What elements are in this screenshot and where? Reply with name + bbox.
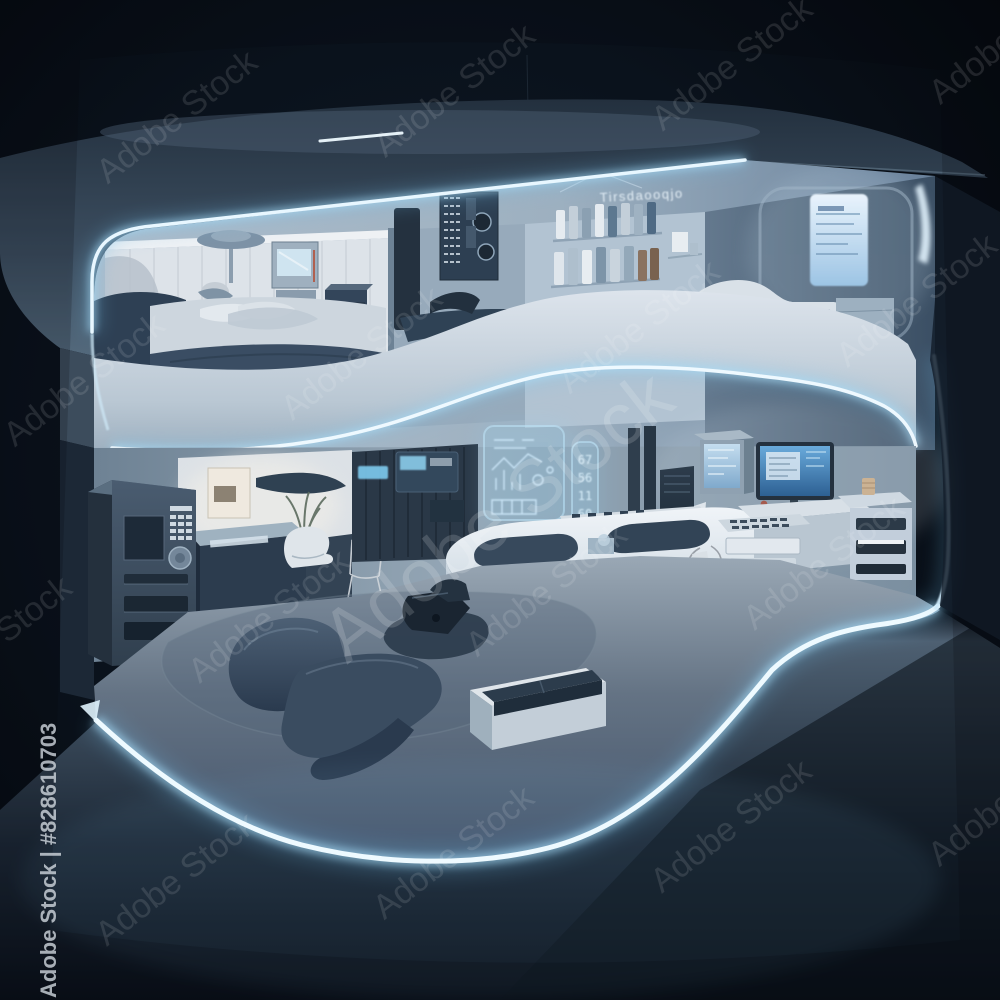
watermark-side-id: Adobe Stock | #828610703 [36, 723, 61, 998]
scene-svg: Tirsdaooqjo [0, 0, 1000, 1000]
stock-image-canvas: Tirsdaooqjo [0, 0, 1000, 1000]
